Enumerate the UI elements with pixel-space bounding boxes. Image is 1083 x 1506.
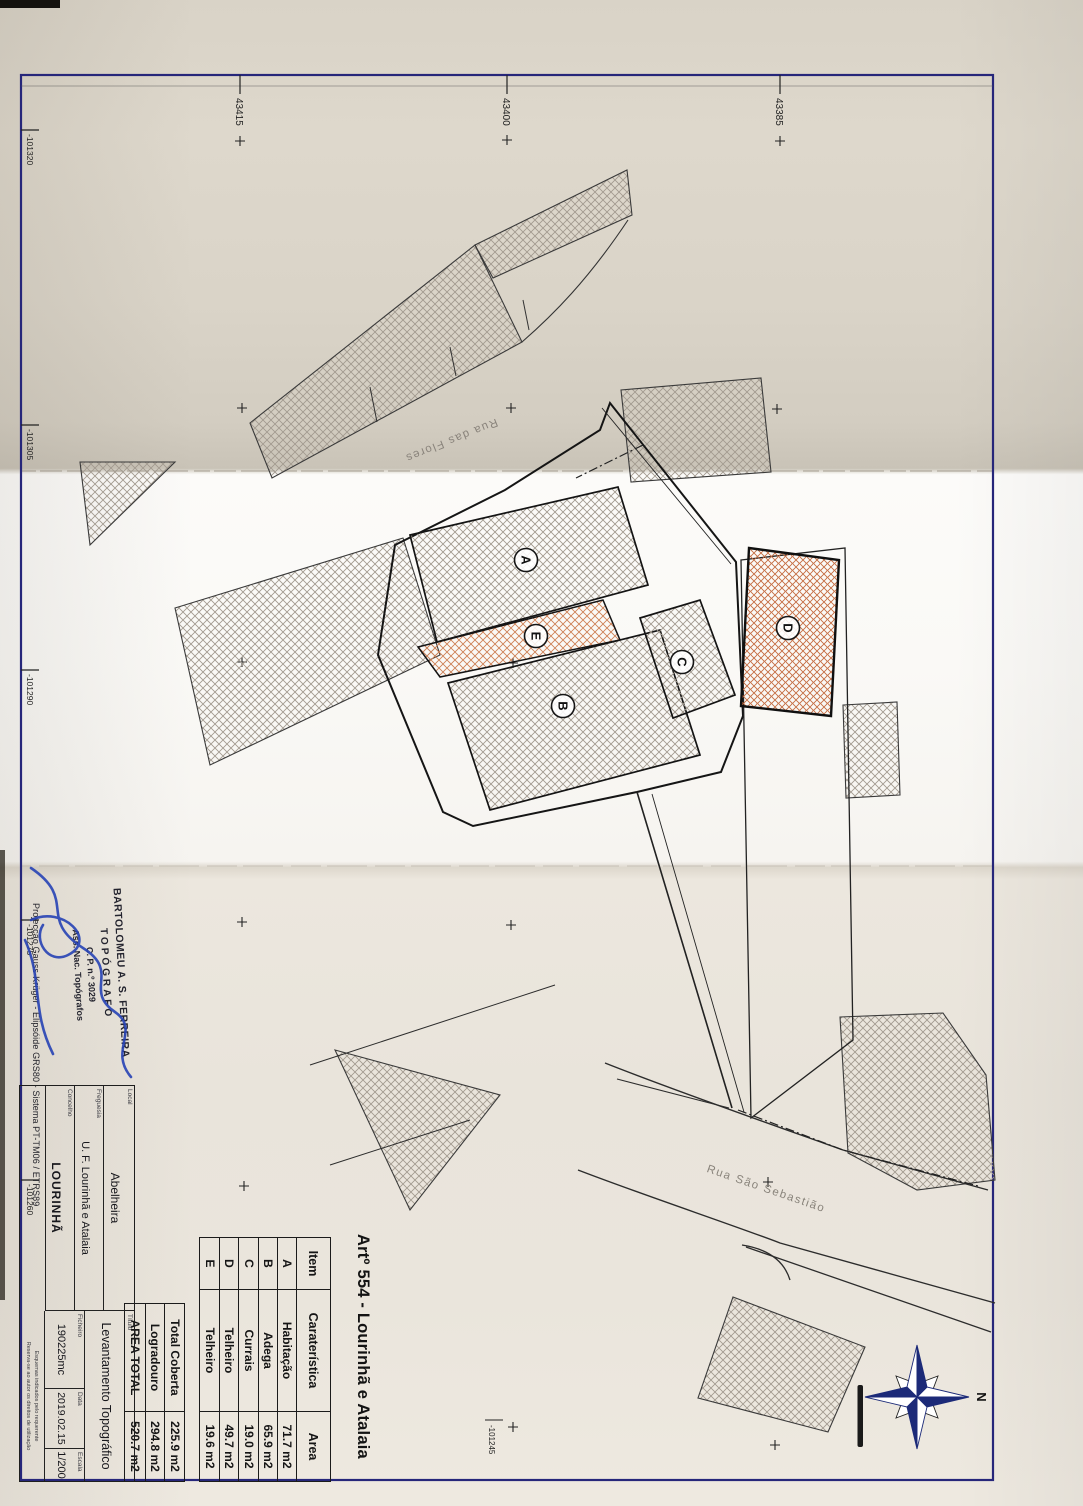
neighbour-block-west [175, 538, 440, 765]
title-block-ficheiro: Ficheiro 190225mc [44, 1311, 84, 1389]
row-b-caracteristica: Adega [258, 1290, 277, 1412]
access-corridor [637, 792, 744, 1112]
building-label-c: C [675, 657, 690, 667]
neighbour-band [250, 245, 522, 478]
data-value: 2019.02.15 [45, 1389, 77, 1448]
row-a-area: 71.7 m2 [277, 1412, 296, 1481]
grid-label--101305: -101305 [25, 429, 35, 460]
note-line-2: Reserva-se ao autor os direitos de utili… [24, 1311, 32, 1481]
titulo-value: Levantamento Topográfico [85, 1311, 127, 1481]
row-e-item: E [200, 1238, 219, 1290]
article-title: Artº 554 - Lourinhã e Atalaia [353, 1234, 372, 1459]
grid-ticks-left [240, 75, 780, 94]
concelho-value: LOURINHÃ [46, 1086, 67, 1310]
title-block-freguesia: Freguesia U. F. Lourinhã e Atalaia [74, 1086, 103, 1311]
freguesia-value: U. F. Lourinhã e Atalaia [75, 1086, 96, 1310]
table-row: C Currais 19.0 m2 [238, 1238, 257, 1481]
site-plan-drawing: 43415 43400 43385 -101320 -101305 -10129… [0, 0, 1083, 1506]
summary-label: Total Coberta [164, 1304, 184, 1412]
compass-scale-bar [858, 1385, 864, 1447]
neighbour-triangle-south [335, 1050, 500, 1210]
building-label-a: A [519, 555, 534, 565]
ficheiro-label: Ficheiro [76, 1314, 83, 1337]
scan-edge-artifact-2 [0, 850, 5, 1300]
escala-value: 1/200 [45, 1449, 77, 1481]
scan-edge-artifact-1 [0, 0, 60, 8]
neighbour-triangle-west [80, 462, 175, 545]
ficheiro-value: 190225mc [45, 1311, 77, 1388]
grid-label--101320: -101320 [25, 134, 35, 165]
building-label-b: B [556, 701, 571, 710]
summary-label: Logradouro [145, 1304, 165, 1412]
table-row: B Adega 65.9 m2 [258, 1238, 277, 1481]
title-block-notes: Esquemas indicados pelo requerente Reser… [20, 1311, 44, 1481]
neighbour-across-street-1 [840, 1013, 995, 1190]
summary-row-logradouro: Logradouro 294.8 m2 [145, 1304, 165, 1481]
signature [8, 855, 148, 1095]
neighbour-block-east-of-d [843, 702, 900, 798]
neighbour-band-upper [475, 170, 632, 278]
header-area: Area [296, 1412, 330, 1481]
note-line-1: Esquemas indicados pelo requerente [32, 1311, 40, 1481]
data-label: Data [76, 1392, 83, 1406]
row-c-item: C [238, 1238, 257, 1290]
summary-value: 294.8 m2 [145, 1412, 165, 1481]
summary-value: 225.9 m2 [164, 1412, 184, 1481]
table-row: E Telheiro 19.6 m2 [200, 1238, 219, 1481]
grid-label-43415: 43415 [233, 98, 244, 126]
area-table: Item Caraterística Area A Habitação 71.7… [199, 1237, 331, 1482]
row-d-caracteristica: Telheiro [219, 1290, 238, 1412]
area-table-header: Item Caraterística Area [296, 1238, 330, 1481]
local-value: Abelheira [104, 1086, 127, 1310]
row-c-area: 19.0 m2 [238, 1412, 257, 1481]
escala-label: Escala [76, 1452, 83, 1472]
table-row: A Habitação 71.7 m2 [277, 1238, 296, 1481]
grid-label--101245: -101245 [487, 1425, 496, 1455]
building-label-d: D [781, 623, 796, 632]
row-c-caracteristica: Currais [238, 1290, 257, 1412]
title-block-titulo: Título Levantamento Topográfico [84, 1311, 134, 1481]
row-e-caracteristica: Telheiro [200, 1290, 219, 1412]
grid-label-43385: 43385 [773, 98, 784, 126]
row-b-area: 65.9 m2 [258, 1412, 277, 1481]
row-d-area: 49.7 m2 [219, 1412, 238, 1481]
compass-rose: N [858, 1345, 990, 1449]
title-block-data: Data 2019.02.15 [44, 1389, 84, 1449]
summary-row-total-coberta: Total Coberta 225.9 m2 [164, 1304, 184, 1481]
neighbour-across-street-2 [698, 1297, 865, 1432]
header-item: Item [296, 1238, 330, 1290]
title-block-concelho: Concelho LOURINHÃ [45, 1086, 74, 1311]
row-b-item: B [258, 1238, 277, 1290]
drawing-sheet: 43415 43400 43385 -101320 -101305 -10129… [0, 0, 1083, 1506]
table-row: D Telheiro 49.7 m2 [219, 1238, 238, 1481]
row-d-item: D [219, 1238, 238, 1290]
street-name-sebastiao: Rua São Sebastião [705, 1163, 827, 1215]
street-name-flores: Rua das Flores [403, 416, 499, 464]
row-e-area: 19.6 m2 [200, 1412, 219, 1481]
title-block-escala: Escala 1/200 [44, 1449, 84, 1481]
compass-north-label: N [974, 1392, 989, 1401]
grid-label--101290: -101290 [25, 674, 35, 705]
neighbour-block-north [621, 378, 771, 482]
titulo-label: Título [126, 1314, 133, 1330]
title-block-local: Local Abelheira [103, 1086, 134, 1311]
row-a-item: A [277, 1238, 296, 1290]
header-caracteristica: Caraterística [296, 1290, 330, 1412]
scanned-survey-page: 43415 43400 43385 -101320 -101305 -10129… [0, 0, 1083, 1506]
grid-label-43400: 43400 [500, 98, 511, 126]
building-label-e: E [529, 632, 544, 641]
row-a-caracteristica: Habitação [277, 1290, 296, 1412]
